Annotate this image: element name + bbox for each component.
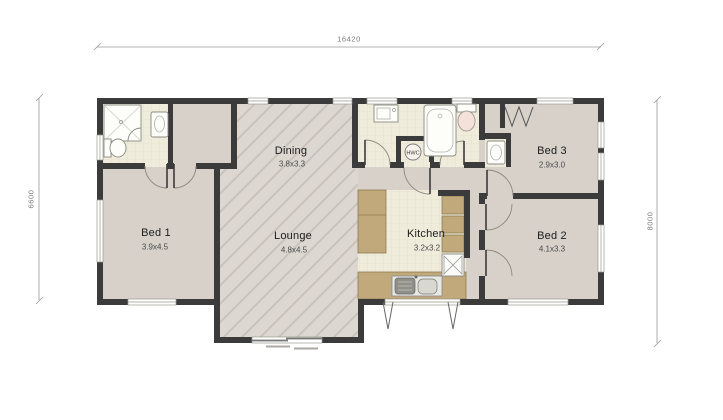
window bbox=[97, 200, 103, 262]
window bbox=[248, 98, 268, 104]
timber-floor-lounge-dining bbox=[220, 104, 358, 337]
window bbox=[367, 98, 397, 104]
vanity-bed3-nook bbox=[487, 141, 505, 164]
room-label-dining: Dining bbox=[275, 145, 307, 157]
room-size-bed1: 3.9x4.5 bbox=[142, 243, 168, 252]
dimension-width-label: 16420 bbox=[337, 35, 361, 44]
dimension-left-height-label: 6600 bbox=[27, 189, 36, 208]
window bbox=[333, 98, 352, 104]
hot-water-cylinder: HWC bbox=[405, 144, 421, 160]
window bbox=[537, 98, 573, 104]
room-label-bed1: Bed 1 bbox=[141, 227, 171, 239]
toilet-bathroom bbox=[457, 104, 476, 131]
room-label-kitchen: Kitchen bbox=[407, 228, 445, 240]
pantry-cabinet bbox=[442, 196, 464, 214]
window bbox=[97, 135, 103, 160]
shower bbox=[104, 105, 141, 141]
dimension-right-height-label: 8000 bbox=[646, 211, 655, 230]
wall-bay-right bbox=[358, 299, 364, 343]
room-size-lounge: 4.8x4.5 bbox=[281, 246, 307, 255]
window bbox=[598, 225, 604, 272]
svg-text:HWC: HWC bbox=[406, 151, 419, 157]
window bbox=[598, 153, 604, 180]
room-size-bed3: 2.9x3.0 bbox=[539, 161, 565, 170]
room-label-bed2: Bed 2 bbox=[537, 230, 567, 242]
window bbox=[452, 98, 472, 104]
floor-plan-drawing: HWC bbox=[0, 0, 723, 420]
room-size-bed2: 4.1x3.3 bbox=[539, 245, 565, 254]
window bbox=[598, 122, 604, 148]
room-label-bed3: Bed 3 bbox=[537, 145, 567, 157]
sliding-door bbox=[252, 337, 322, 350]
room-size-dining: 3.8x3.3 bbox=[279, 160, 305, 169]
room-size-kitchen: 3.2x3.2 bbox=[414, 244, 440, 253]
window bbox=[128, 299, 176, 305]
toilet-ensuite bbox=[104, 139, 126, 157]
dishwasher bbox=[442, 254, 464, 276]
bathtub bbox=[424, 105, 456, 156]
vanity-ensuite bbox=[151, 112, 168, 137]
kitchen-counter-left bbox=[358, 190, 386, 253]
oven-cabinet bbox=[442, 216, 464, 233]
window bbox=[508, 299, 568, 305]
kitchen-sink bbox=[392, 276, 442, 297]
laundry-tub bbox=[374, 105, 398, 122]
floor-plan-page: HWC 16420 6600 8000 Bed 1 3.9x4.5 Dining… bbox=[0, 0, 723, 420]
wall-bay-left bbox=[214, 299, 220, 343]
room-label-lounge: Lounge bbox=[274, 230, 312, 242]
deck-piles bbox=[383, 302, 458, 329]
fridge-cabinet bbox=[442, 235, 464, 252]
